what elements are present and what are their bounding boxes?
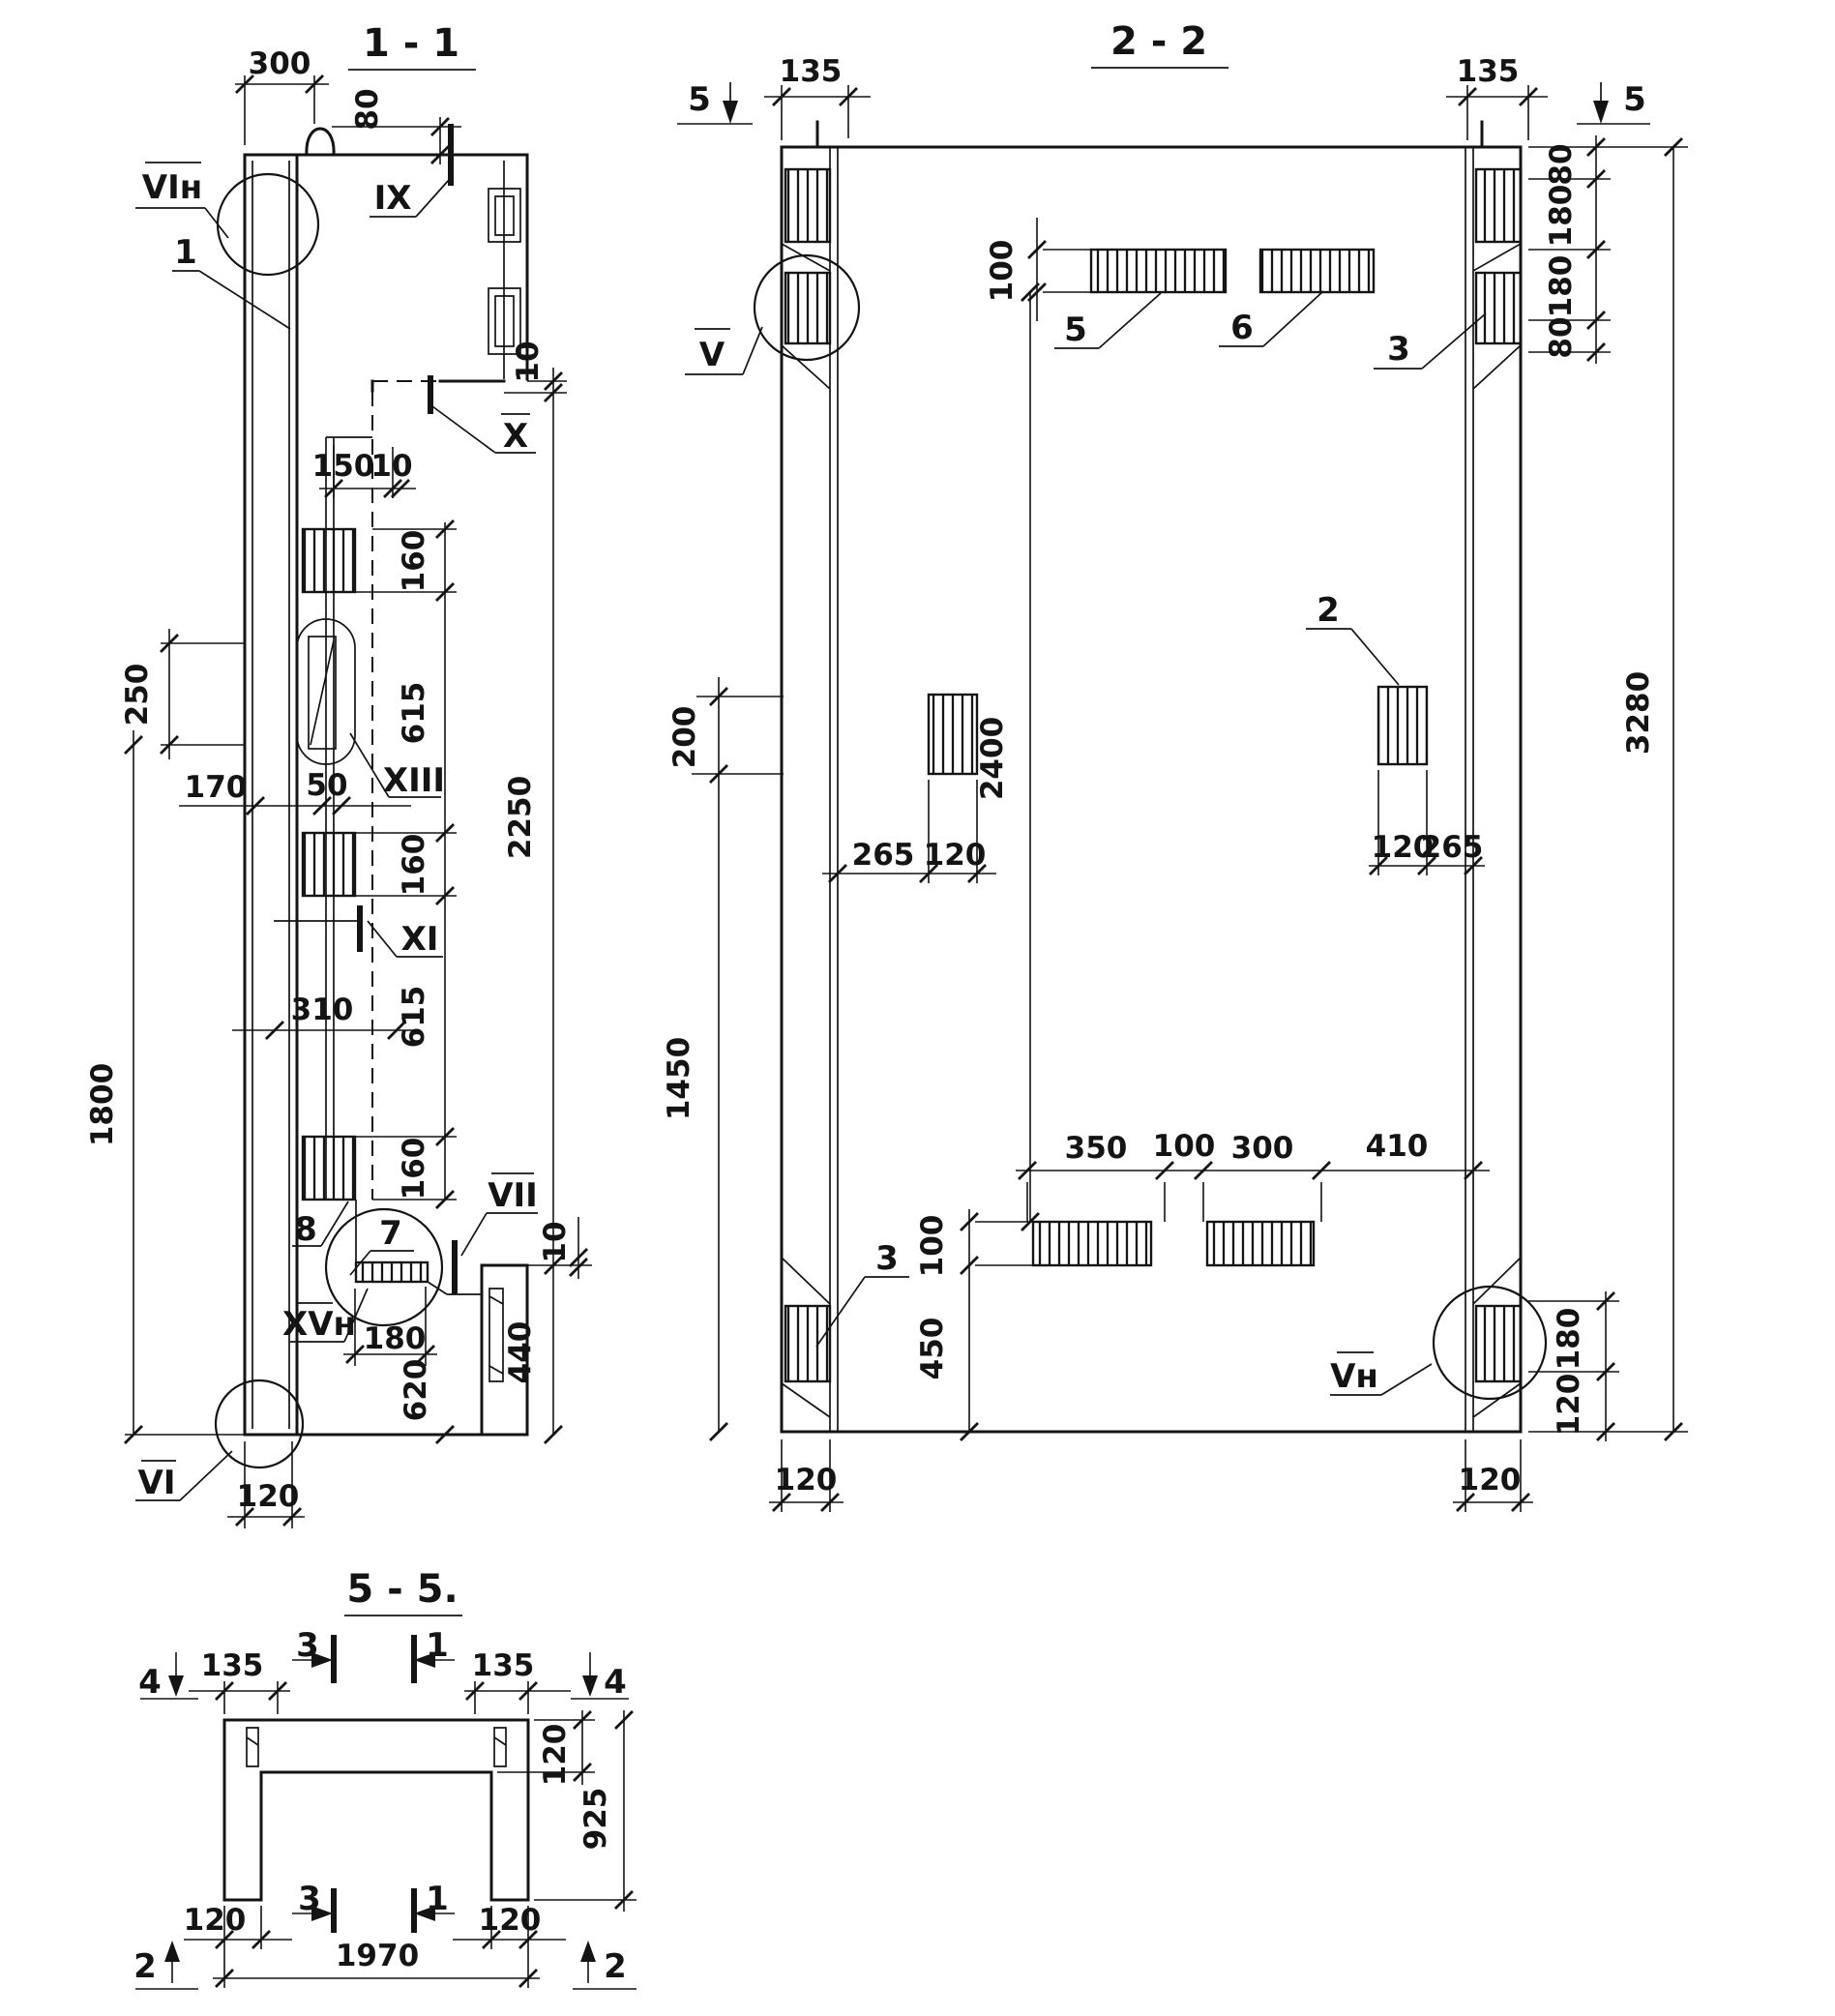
cut-marker-2-left: 2 (133, 1947, 157, 1986)
detail-label-vii: VII (488, 1176, 538, 1215)
dim-180-b: 180 (1544, 255, 1579, 318)
detail-label-xi: XI (401, 920, 439, 959)
dim-135-left-s55: 135 (201, 1648, 264, 1683)
cut-marker-3-bottom: 3 (298, 1880, 321, 1918)
dim-180-a: 180 (1544, 185, 1579, 248)
dim-10-notch: 10 (370, 449, 412, 484)
section-2-2-title: 2 - 2 (1110, 19, 1207, 64)
dim-100-top: 100 (985, 240, 1020, 303)
dim-180-right: 180 (1552, 1308, 1586, 1371)
dim-100-bottom: 100 (915, 1215, 950, 1278)
detail-label-x: X (503, 417, 528, 456)
dim-120-leg-right: 120 (479, 1903, 542, 1938)
dim-120-bottom-left: 120 (775, 1463, 838, 1497)
dim-300-s22: 300 (1231, 1131, 1294, 1166)
rebar-bottom-right (1207, 1222, 1314, 1265)
dim-410: 410 (1366, 1129, 1429, 1164)
dim-80: 80 (350, 88, 385, 130)
dim-150: 150 (312, 449, 375, 484)
engineering-drawing-canvas: 1 - 1 300 80 VIн 1 IX X 10 150 10 160 61… (0, 0, 1835, 2016)
dim-120-left: 120 (924, 838, 987, 873)
dim-440: 440 (503, 1321, 538, 1384)
dim-3280: 3280 (1621, 671, 1656, 755)
dim-120-right-col: 120 (1552, 1374, 1586, 1437)
wall-hatch-left-3 (785, 1306, 830, 1381)
detail-label-ix: IX (374, 179, 412, 218)
detail-label-xiii: XIII (383, 761, 445, 800)
embedded-plate-bottom (489, 1289, 503, 1381)
dim-450: 450 (915, 1318, 950, 1380)
section-2-2: 2 - 2 5 135 135 5 80 180 180 80 3280 100… (662, 19, 1688, 1512)
rebar-bottom-left (1033, 1222, 1151, 1265)
wall-hatch-right-3 (1476, 1306, 1521, 1381)
dim-160-b: 160 (397, 834, 431, 897)
dim-265-left: 265 (852, 838, 915, 873)
item-label-6: 6 (1230, 309, 1254, 347)
hatched-anchor-2 (303, 833, 355, 896)
dim-350: 350 (1065, 1131, 1128, 1166)
wall-hatch-left-2 (785, 273, 830, 343)
dim-615-b: 615 (397, 986, 431, 1049)
dim-135-right: 135 (1457, 54, 1520, 89)
detail-label-v: V (699, 336, 725, 374)
cut-marker-1-top: 1 (426, 1626, 449, 1665)
drawing-page: 1 - 1 300 80 VIн 1 IX X 10 150 10 160 61… (0, 0, 1835, 2016)
item-label-1: 1 (174, 233, 197, 272)
rebar-mid-left (929, 695, 977, 774)
cut-marker-2-right: 2 (604, 1947, 627, 1986)
section-5-5: 5 - 5. 4 135 3 1 135 4 120 925 120 3 1 1… (133, 1567, 636, 1989)
wall-hatch-right-2 (1476, 273, 1521, 343)
dim-265-right: 265 (1421, 830, 1484, 865)
item-label-3-left: 3 (875, 1239, 899, 1278)
detail-label-vi: VI (138, 1464, 176, 1502)
cut-marker-4-left: 4 (138, 1663, 162, 1702)
hatched-plate-detail7 (356, 1262, 428, 1282)
detail-label-xvn: XVн (282, 1305, 356, 1344)
section-1-1: 1 - 1 300 80 VIн 1 IX X 10 150 10 160 61… (85, 21, 592, 1528)
rebar-item-5 (1091, 250, 1226, 292)
item-label-5: 5 (1064, 311, 1087, 349)
dim-160-a: 160 (397, 530, 431, 593)
dim-250: 250 (120, 664, 155, 726)
dim-925: 925 (578, 1788, 613, 1851)
cut-marker-5-right: 5 (1623, 80, 1646, 119)
dim-120-bottom-right: 120 (1459, 1463, 1522, 1497)
dim-120-leg-left: 120 (184, 1903, 247, 1938)
dim-100-mid: 100 (1153, 1129, 1216, 1164)
dim-120-s11: 120 (237, 1479, 300, 1514)
dim-80-a: 80 (1544, 143, 1579, 185)
dim-120-slab: 120 (538, 1724, 573, 1787)
dim-200: 200 (667, 706, 702, 769)
dim-1800: 1800 (85, 1063, 120, 1146)
item-label-2: 2 (1317, 591, 1340, 630)
dim-50: 50 (306, 768, 347, 803)
dim-2250: 2250 (503, 776, 538, 859)
item-label-7: 7 (379, 1214, 402, 1253)
cut-marker-1-bottom: 1 (426, 1880, 449, 1918)
dim-615-a: 615 (397, 682, 431, 745)
section-5-5-title: 5 - 5. (346, 1567, 458, 1612)
item-label-3-right: 3 (1387, 330, 1410, 369)
wall-hatch-right-1 (1476, 169, 1521, 242)
dim-310: 310 (291, 993, 354, 1027)
dim-135-left: 135 (780, 54, 843, 89)
detail-label-vn: Vн (1330, 1357, 1378, 1396)
cut-marker-5-left: 5 (688, 80, 711, 119)
hatched-anchor-1 (303, 529, 355, 592)
dim-1970: 1970 (336, 1939, 419, 1973)
section-1-1-title: 1 - 1 (363, 21, 459, 66)
dim-170: 170 (185, 770, 248, 805)
detail-circle-vin (218, 174, 318, 275)
dim-620: 620 (399, 1359, 433, 1422)
rebar-item-6 (1260, 250, 1374, 292)
dim-300: 300 (249, 46, 311, 81)
item-label-8: 8 (294, 1210, 317, 1249)
detail-label-vin: VIн (142, 168, 202, 207)
wall-hatch-left-1 (785, 169, 830, 242)
hatched-anchor-3 (303, 1137, 355, 1200)
dim-10-top: 10 (511, 341, 546, 382)
dim-135-right-s55: 135 (472, 1648, 535, 1683)
dim-1450: 1450 (662, 1037, 696, 1120)
dim-160-c: 160 (397, 1138, 431, 1201)
rebar-item-2 (1378, 687, 1427, 764)
cut-marker-4-right: 4 (604, 1663, 627, 1702)
dim-180: 180 (364, 1321, 427, 1356)
cut-marker-3-top: 3 (296, 1626, 319, 1665)
dim-80-b: 80 (1544, 316, 1579, 358)
dim-2400: 2400 (975, 717, 1010, 800)
dim-10-vii: 10 (538, 1221, 573, 1262)
